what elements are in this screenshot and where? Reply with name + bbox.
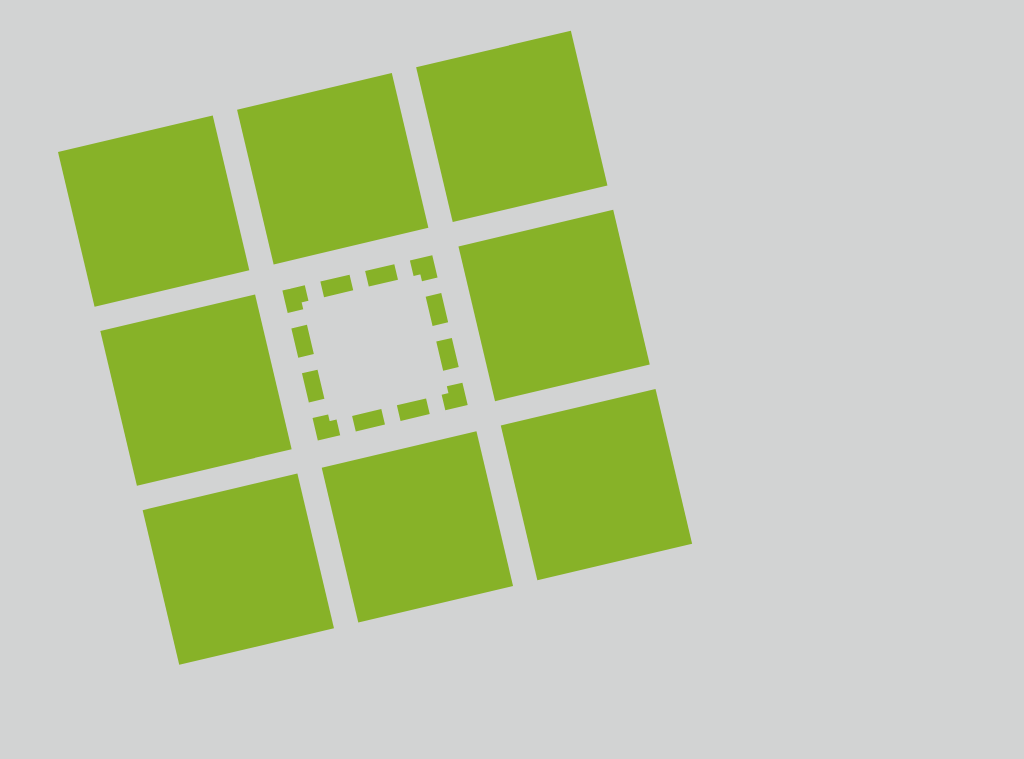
green-square-r3c2 [322,431,513,622]
dashed-placeholder-outline-icon [279,252,470,443]
green-square-r1c2 [237,73,428,264]
green-grid-logo [58,31,692,665]
green-square-r1c3 [416,31,607,222]
green-square-r3c1 [143,474,334,665]
green-square-r3c3 [501,389,692,580]
green-square-r2c1 [100,294,291,485]
logo-canvas [0,0,1024,759]
placeholder-cell-r2c2 [279,252,470,443]
green-square-r2c3 [458,210,649,401]
green-square-r1c1 [58,115,249,306]
